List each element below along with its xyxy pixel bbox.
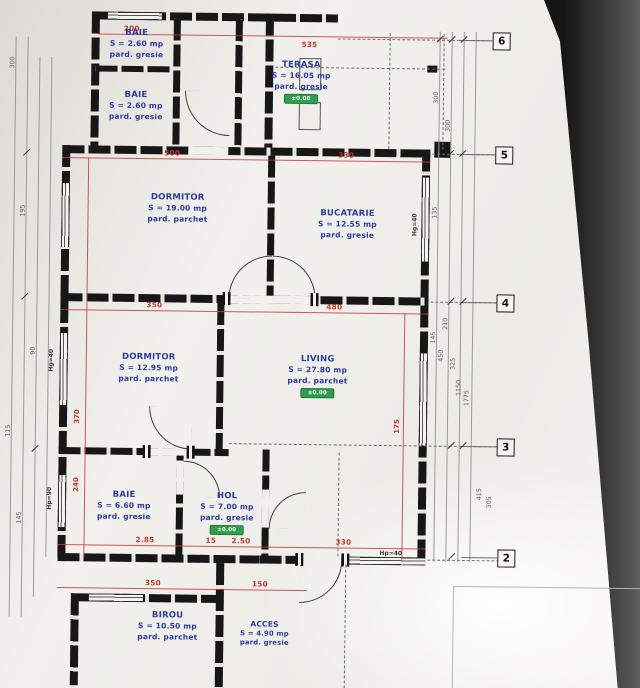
marker-leader: [461, 557, 498, 558]
chain-label: 135: [431, 207, 438, 219]
chain-label: 300: [433, 92, 440, 104]
shaft-fixture: [299, 102, 321, 130]
sill-label: Hg=40: [411, 213, 418, 236]
door-jamb: [310, 293, 318, 306]
dim-label: 330: [338, 150, 354, 159]
door-jamb: [143, 445, 151, 458]
room-label-living: LIVING S = 27.80 mp pard. parchet ±0.00: [262, 354, 373, 400]
room-floor: pard. gresie: [292, 229, 402, 240]
door-arc: [273, 256, 317, 300]
wall: [57, 553, 259, 563]
door-opening: [188, 147, 228, 155]
dim-label: 480: [326, 302, 342, 311]
door-jamb: [222, 292, 230, 305]
marker-leader: [460, 302, 497, 303]
room-label-baie-3: BAIE S = 6.60 mp pard. gresie: [69, 489, 179, 522]
wall: [216, 303, 225, 451]
room-label-hol: HOL S = 7.00 mp pard. gresie ±0.00: [172, 490, 283, 536]
grid-marker-2: 2: [497, 549, 515, 567]
dim-line: [62, 157, 430, 162]
chain-label: 195: [19, 205, 26, 217]
chain-label: 115: [5, 424, 12, 436]
room-floor: pard. parchet: [93, 373, 203, 384]
dim-label: 2.85: [135, 535, 154, 544]
door-arc: [184, 91, 230, 137]
room-label-birou: BIROU S = 10.50 mp pard. parchet: [112, 610, 222, 643]
grid-marker-5: 5: [495, 146, 513, 164]
room-floor: pard. gresie: [172, 512, 282, 523]
dim-line: [57, 587, 307, 591]
grid-marker-6: 6: [493, 32, 511, 50]
dim-label: 2.50: [231, 536, 250, 545]
chain-label: 305: [486, 496, 493, 508]
room-floor: pard. gresie: [81, 49, 191, 60]
dim-chain: [457, 32, 464, 562]
window: [343, 557, 425, 566]
elevation-badge: ±0.00: [210, 525, 243, 536]
marker-leader: [460, 154, 496, 155]
floor-plan-photo: 200 535 500 330 350 480 2.85 15 2.50 330…: [0, 0, 640, 688]
chain-label: 145: [430, 332, 437, 344]
plan-content: 200 535 500 330 350 480 2.85 15 2.50 330…: [0, 0, 640, 688]
room-floor: pard. gresie: [81, 111, 191, 122]
dim-label-vertical: 370: [73, 409, 81, 424]
stamp-box: [451, 586, 640, 688]
door-jamb: [295, 553, 303, 566]
dim-chain: [433, 32, 440, 562]
access-open-edge: [344, 565, 347, 688]
terrace-edge-line: [442, 34, 444, 150]
chain-label: 325: [450, 358, 457, 370]
marker-leader: [461, 446, 498, 447]
window: [419, 353, 428, 445]
elevation-badge: ±0.00: [301, 388, 334, 399]
dim-label: 535: [302, 40, 318, 49]
room-label-dormitor-1: DORMITOR S = 19.00 mp pard. parchet: [122, 192, 232, 225]
chain-label: 450: [438, 350, 445, 362]
dim-line: [60, 309, 428, 314]
elevation-badge: ±0.00: [284, 94, 317, 105]
dim-label: 350: [145, 578, 161, 587]
chain-label: 90: [30, 347, 37, 355]
grid-marker-4: 4: [496, 294, 514, 312]
grid-axis-3: [229, 443, 497, 447]
room-label-dormitor-2: DORMITOR S = 12.95 mp pard. parchet: [93, 351, 203, 384]
wall: [234, 19, 243, 153]
dim-chain: [9, 37, 17, 617]
dim-label: 150: [252, 579, 268, 588]
dim-line: [401, 313, 405, 561]
window: [421, 177, 430, 261]
grid-marker-3: 3: [497, 438, 515, 456]
chain-label: 210: [442, 318, 449, 330]
window: [58, 475, 67, 527]
room-floor: pard. parchet: [112, 631, 222, 642]
room-label-bucatarie: BUCATARIE S = 12.55 mp pard. gresie: [292, 208, 402, 241]
chain-label: 300: [9, 56, 16, 68]
window: [108, 12, 162, 21]
room-floor: pard. gresie: [246, 81, 356, 92]
room-label-baie-2: BAIE S = 2.60 mp pard. gresie: [81, 89, 191, 122]
chain-label: 1150: [455, 380, 462, 396]
room-floor: pard. parchet: [122, 213, 232, 224]
chain-label: 300: [445, 120, 452, 132]
door-opening: [147, 448, 187, 455]
dim-chain: [21, 37, 29, 617]
wall: [70, 593, 79, 685]
wall: [62, 145, 430, 157]
room-floor: pard. parchet: [262, 375, 372, 386]
dim-chain: [445, 32, 452, 562]
chain-label: 415: [476, 488, 483, 500]
dim-chain: [469, 32, 476, 562]
dim-label: 15: [205, 536, 216, 545]
dim-label: 500: [164, 148, 180, 157]
grid-axis-2: [427, 560, 499, 562]
room-label-terasa: TERASA S = 16.05 mp pard. gresie ±0.00: [246, 59, 357, 105]
door-jamb: [187, 446, 195, 459]
dim-label-vertical: 175: [393, 419, 401, 434]
dim-label: 350: [146, 300, 162, 309]
chain-label: 1775: [463, 390, 470, 406]
window: [89, 593, 143, 602]
room-floor: pard. gresie: [209, 638, 319, 649]
dim-chain: [45, 57, 52, 557]
chain-label: 145: [16, 512, 23, 524]
sill-label: Hp=40: [379, 550, 402, 557]
terrace-edge-line: [388, 33, 390, 149]
room-label-baie-1: BAIE S = 2.60 mp pard. gresie: [81, 27, 191, 60]
window: [61, 183, 70, 247]
door-arc: [229, 255, 273, 299]
dim-chain: [33, 57, 41, 597]
door-arc: [299, 560, 343, 604]
room-floor: pard. gresie: [69, 511, 179, 522]
room-label-acces: ACCES S = 4.90 mp pard. gresie: [209, 619, 319, 649]
window: [59, 333, 68, 405]
dim-label: 330: [335, 537, 351, 546]
wall: [95, 65, 179, 72]
door-arc: [149, 406, 193, 450]
